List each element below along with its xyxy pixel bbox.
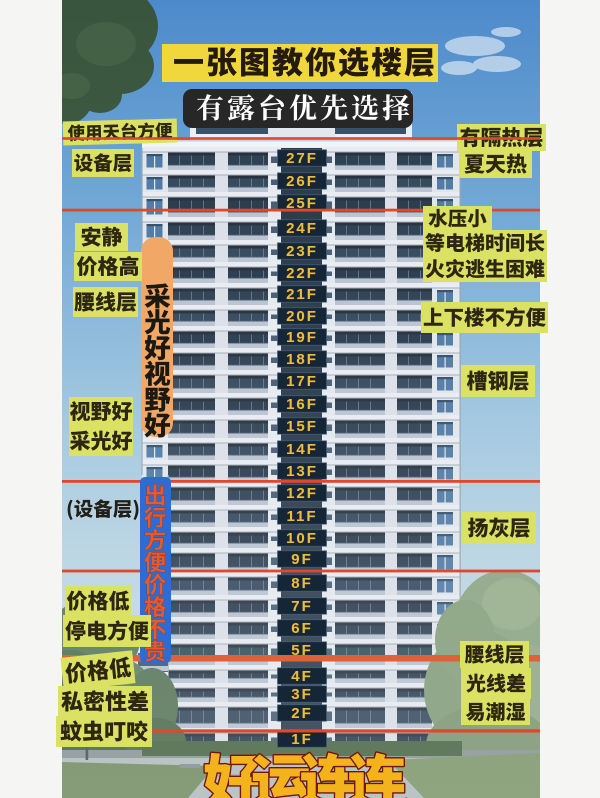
svg-text:26F: 26F — [286, 173, 318, 190]
svg-text:1F: 1F — [291, 731, 313, 748]
svg-text:13F: 13F — [286, 463, 318, 480]
svg-text:9F: 9F — [291, 551, 313, 568]
svg-text:19F: 19F — [286, 329, 318, 346]
svg-text:4F: 4F — [291, 668, 313, 685]
svg-text:27F: 27F — [286, 150, 318, 167]
svg-text:15F: 15F — [286, 418, 318, 435]
svg-text:22F: 22F — [286, 265, 318, 282]
svg-text:11F: 11F — [286, 508, 317, 525]
svg-text:14F: 14F — [286, 441, 318, 458]
svg-text:20F: 20F — [286, 308, 318, 325]
svg-text:10F: 10F — [286, 530, 318, 547]
svg-text:24F: 24F — [286, 220, 318, 237]
svg-text:12F: 12F — [286, 485, 318, 502]
svg-text:18F: 18F — [286, 351, 318, 368]
svg-text:23F: 23F — [286, 243, 318, 260]
svg-text:2F: 2F — [291, 705, 313, 722]
svg-text:7F: 7F — [291, 598, 313, 615]
svg-text:17F: 17F — [286, 373, 318, 390]
svg-text:8F: 8F — [291, 575, 313, 592]
svg-text:3F: 3F — [291, 686, 313, 703]
svg-text:6F: 6F — [291, 620, 313, 637]
svg-text:21F: 21F — [286, 286, 318, 303]
svg-text:16F: 16F — [286, 396, 318, 413]
